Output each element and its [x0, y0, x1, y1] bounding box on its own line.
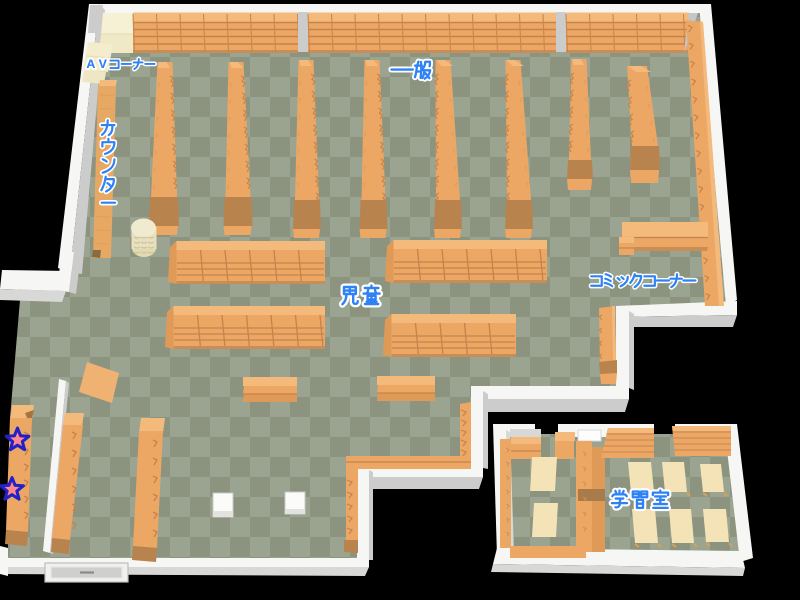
svg-text:V: V	[99, 57, 108, 71]
svg-text:A: A	[86, 57, 95, 71]
